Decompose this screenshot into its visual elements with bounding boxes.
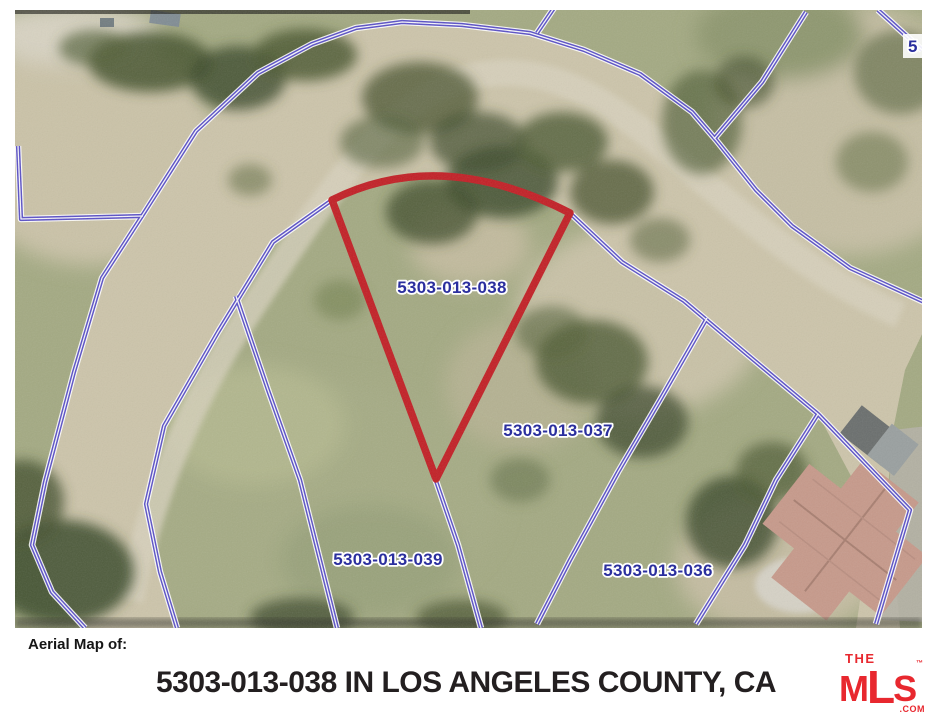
parcel-label-036: 5303-013-036: [603, 561, 712, 580]
map-caption: Aerial Map of:: [28, 636, 127, 653]
photo-grain: [15, 10, 922, 628]
parcel-label-038: 5303-013-038: [397, 278, 506, 297]
svg-text:5: 5: [908, 37, 918, 56]
mls-logo-m: M: [839, 668, 867, 709]
mls-logo: THE MLS ™ .COM: [839, 652, 925, 716]
mls-logo-com: .COM: [900, 704, 926, 714]
aerial-map-report: { "map": { "type": "aerial-parcel-map", …: [0, 0, 932, 720]
page-title: 5303-013-038 IN LOS ANGELES COUNTY, CA: [0, 666, 932, 700]
parcel-label-partial: 5: [903, 34, 922, 58]
footer: Aerial Map of: 5303-013-038 IN LOS ANGEL…: [0, 628, 932, 720]
parcel-label-037: 5303-013-037: [503, 421, 612, 440]
mls-logo-s: S: [893, 668, 915, 709]
parcel-label-039: 5303-013-039: [333, 550, 442, 569]
aerial-map: 5303-013-038 5303-013-037 5303-013-039 5…: [15, 10, 922, 628]
mls-logo-trademark: ™: [916, 660, 923, 667]
mls-logo-l: L: [867, 661, 893, 713]
mls-logo-mls: MLS: [839, 662, 915, 708]
